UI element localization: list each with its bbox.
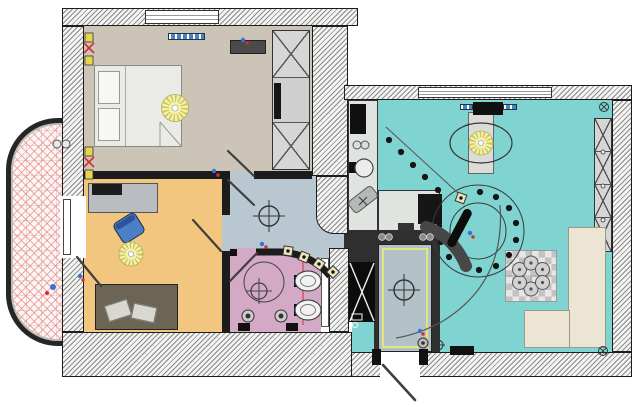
living-spotlight-line — [386, 127, 458, 193]
dining-set — [505, 250, 557, 302]
floor-plan-canvas — [0, 0, 640, 407]
bedroom-sunburst-lamp — [162, 95, 189, 122]
living-zone-arc — [396, 205, 501, 338]
closet-x-marks — [350, 263, 374, 328]
plan-symbols-overlay — [0, 0, 640, 407]
bed-blanket-fold — [160, 122, 181, 146]
kitchen-symbols — [349, 141, 373, 205]
living-oval-lamp — [450, 123, 512, 163]
entry-door-hinges — [379, 234, 434, 241]
bathroom-ceiling-light — [244, 262, 284, 304]
balcony-symbols — [45, 140, 70, 295]
entry-meter-symbol — [418, 338, 428, 348]
hallway-ceiling-light — [253, 200, 285, 232]
bathroom-downlight — [242, 310, 287, 322]
kids-sunburst-lamp — [119, 242, 143, 266]
door-swing-lines — [77, 151, 415, 400]
bedroom-radiator-valves — [84, 33, 94, 179]
entry-ceiling-light — [388, 274, 420, 306]
utility-marks — [78, 38, 475, 336]
